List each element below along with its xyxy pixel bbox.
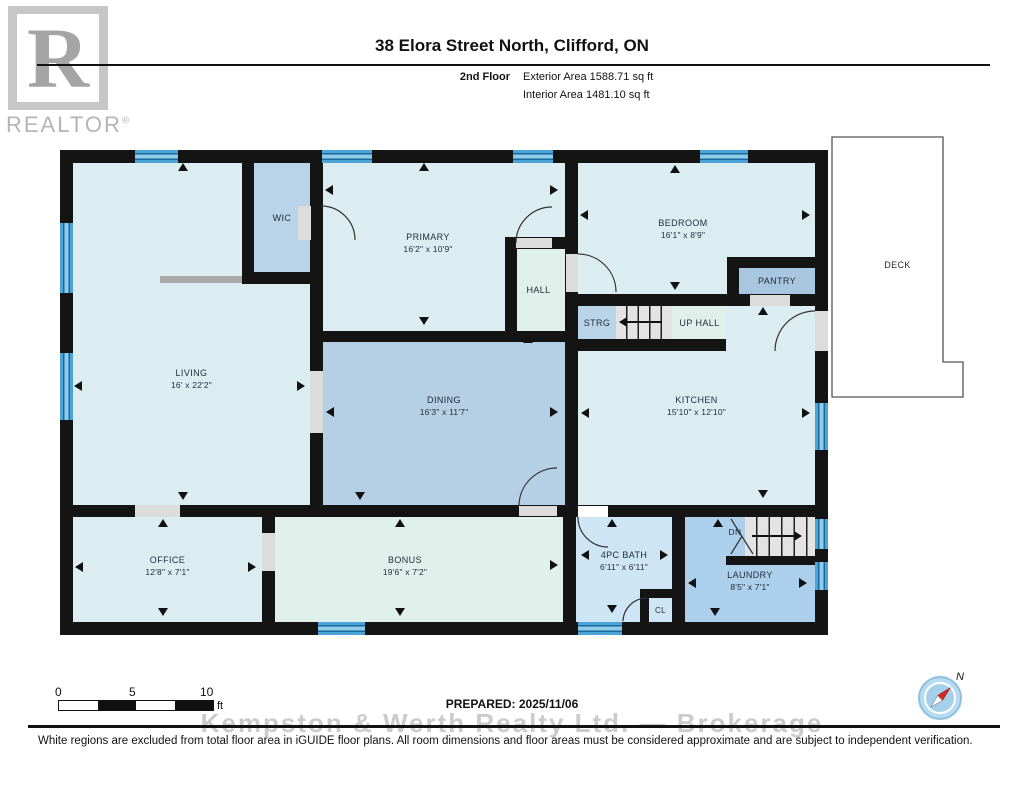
half-wall <box>160 276 242 283</box>
label-pantry: PANTRY <box>739 268 815 294</box>
label-office: OFFICE12'8" x 7'1" <box>73 517 262 615</box>
page-title: 38 Elora Street North, Clifford, ON <box>0 36 1024 56</box>
label-dining: DINING16'3" x 11'7" <box>323 395 565 417</box>
window <box>60 353 73 420</box>
label-living: LIVING16' x 22'2" <box>73 368 310 390</box>
window <box>815 562 828 590</box>
window <box>700 150 748 163</box>
floor-label: 2nd Floor <box>380 71 510 83</box>
window <box>135 150 178 163</box>
label-deck: DECK <box>840 260 955 270</box>
label-primary: PRIMARY16'2" x 10'9" <box>323 163 533 323</box>
dimension-arrow <box>550 560 558 570</box>
dimension-arrow <box>713 519 723 527</box>
label-bonus: BONUS19'6" x 7'2" <box>275 517 535 615</box>
window <box>513 150 553 163</box>
door-leaf-hall-bedroom <box>566 254 578 292</box>
room-dining <box>323 342 565 505</box>
realtor-logo: R <box>8 6 108 110</box>
exterior-area: Exterior Area 1588.71 sq ft <box>523 71 653 83</box>
dimension-arrow <box>523 335 533 343</box>
compass-north-label: N <box>956 671 964 683</box>
prepared-date: PREPARED: 2025/11/06 <box>0 697 1024 711</box>
realtor-wordmark: REALTOR® <box>6 112 131 138</box>
label-wic: WIC <box>254 163 310 272</box>
wall <box>565 150 578 505</box>
dimension-arrow <box>550 185 558 195</box>
room-kitchen <box>578 351 815 505</box>
room-kitchen-upper <box>726 306 815 351</box>
dimension-arrow <box>355 492 365 500</box>
dimension-arrow <box>758 490 768 498</box>
stairs-up-arrow <box>626 321 662 323</box>
window <box>60 223 73 293</box>
footer-divider <box>28 725 1000 728</box>
dimension-arrow <box>178 492 188 500</box>
stairs-down-arrow <box>752 535 796 537</box>
window <box>322 150 372 163</box>
wall <box>726 556 815 565</box>
floorplan-page: R REALTOR® 38 Elora Street North, Cliffo… <box>0 0 1024 791</box>
door-leaf-dining <box>519 506 557 516</box>
dimension-arrow <box>607 605 617 613</box>
label-bath: 4PC BATH6'11" x 6'11" <box>576 517 672 605</box>
label-up-hall: UP HALL <box>672 306 727 339</box>
opening-living-dining <box>311 371 322 433</box>
dimension-arrow <box>758 307 768 315</box>
opening-pantry-kitchen <box>750 296 790 305</box>
title-divider <box>37 64 990 66</box>
label-closet: CL <box>649 598 672 622</box>
stairs-up-arrowhead <box>619 317 627 327</box>
door-gap-bath <box>578 506 608 517</box>
compass-icon: N <box>910 668 980 726</box>
window <box>815 519 828 549</box>
realtor-logo-letter: R <box>27 15 89 101</box>
stairs-down-arrowhead <box>794 531 802 541</box>
wall <box>242 150 254 284</box>
wall <box>672 517 685 622</box>
wall <box>563 517 576 622</box>
dimension-arrow <box>178 163 188 171</box>
label-laundry: LAUNDRY8'5" x 7'1" <box>685 570 815 592</box>
dimension-arrow <box>802 210 810 220</box>
window <box>318 622 365 635</box>
opening-living-office <box>135 506 180 516</box>
disclaimer-text: White regions are excluded from total fl… <box>38 735 973 747</box>
wall <box>565 339 726 351</box>
label-stairs-down: DN <box>722 527 748 537</box>
interior-area: Interior Area 1481.10 sq ft <box>523 89 650 101</box>
label-kitchen: KITCHEN15'10" x 12'10" <box>578 395 815 417</box>
window <box>815 403 828 450</box>
label-strg: STRG <box>578 306 616 339</box>
window <box>578 622 622 635</box>
dimension-arrow <box>710 608 720 616</box>
wall <box>60 622 828 635</box>
wall <box>242 272 323 284</box>
label-hall: HALL <box>512 249 565 331</box>
door-leaf-deck <box>815 311 828 351</box>
opening-office-bonus <box>263 533 274 571</box>
